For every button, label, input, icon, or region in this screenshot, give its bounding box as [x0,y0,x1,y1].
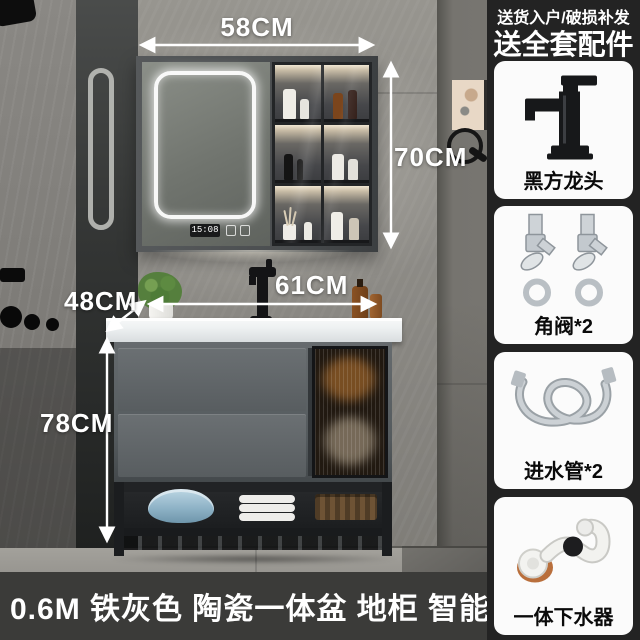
shower-knob [0,306,22,328]
shelf-cell [324,186,370,243]
bottle-icon [283,89,296,119]
cabinet-shadow [108,554,400,564]
mirror-touch-button [226,225,236,236]
bottle-icon [348,159,358,180]
shower-knob [24,314,40,330]
led-mirror: 15:08 [142,62,270,246]
dim-label-mirror-width: 58CM [197,12,317,43]
corner-shadow [0,348,76,548]
accessory-label: 角阀*2 [534,315,593,339]
shelf-cell [324,65,370,122]
dim-label-mirror-height: 70CM [394,142,467,173]
vanity-drawer-bottom [118,414,306,477]
product-image: 15:08 [0,0,640,640]
metal-frame-rail [114,482,392,492]
faucet-lever [266,259,272,269]
faucet-body [257,275,268,321]
vanity-cabinet [114,342,392,482]
shelf-cell [275,125,321,182]
amber-bottle-icon [370,294,382,319]
product-caption: 0.6M 铁灰色 陶瓷一体盆 地柜 智能镜柜 [0,584,552,628]
faucet-nozzle [249,276,256,285]
dim-label-cabinet-height: 78CM [40,408,113,439]
dim-label-counter-depth: 48CM [64,286,137,317]
accessory-card-hoses: 进水管*2 [494,352,633,489]
accessories-panel: 送货入户/破损补发 送全套配件 黑方龙头 [487,0,640,640]
wicker-basket [315,494,377,520]
bottle-icon [304,222,312,240]
wall-art [452,80,488,130]
bottle-icon [332,154,344,180]
fluted-glass-door [312,346,388,478]
bottle-icon [300,99,309,119]
folded-towels [239,495,295,523]
smart-mirror-cabinet: 15:08 [136,56,378,252]
metal-frame-rail [114,528,392,536]
shelf-cell [275,65,321,122]
bottle-icon [331,212,343,240]
shower-door-handle [88,68,114,230]
angle-valve-pair-icon [505,206,623,315]
bottle-icon [333,93,343,119]
amber-bottle-icon [352,286,368,319]
shower-knob [46,318,59,331]
mirror-touch-button [240,225,250,236]
black-square-faucet-icon [505,61,623,170]
mirror-side-shelves [272,62,372,246]
glass-interior-glow [323,357,375,401]
under-cabinet-light [150,250,355,263]
bottle-icon [284,154,293,180]
glass-interior-glow [325,417,375,465]
towel [239,504,295,512]
accessory-label: 一体下水器 [514,606,614,630]
promo-line2: 送全套配件 [487,23,640,63]
shower-mixer [0,268,25,282]
vanity-drawer-top [118,348,306,411]
drain-trap-icon [505,497,623,606]
towel [239,513,295,521]
accessory-label: 黑方龙头 [524,170,604,194]
accessory-card-drain: 一体下水器 [494,497,633,635]
inlet-hose-icon [505,352,623,460]
cabinet-leg [114,482,124,556]
towel [239,495,295,503]
bottle-icon [297,159,303,180]
accessory-card-angle-valves: 角阀*2 [494,206,633,344]
accessory-label: 进水管*2 [524,460,603,484]
ceramic-basin-countertop [106,318,402,342]
shelf-cell [275,186,321,243]
diffuser-pot-icon [283,224,296,240]
bottle-icon [349,218,359,240]
led-light-frame [154,71,256,219]
shelf-cell [324,125,370,182]
cabinet-leg [382,482,392,556]
dim-label-counter-width: 61CM [275,270,348,301]
blue-wash-basin [148,489,214,523]
shelf-grate [122,536,384,550]
mirror-clock: 15:08 [190,224,220,237]
bottle-icon [348,90,357,119]
accessory-card-faucet: 黑方龙头 [494,61,633,199]
